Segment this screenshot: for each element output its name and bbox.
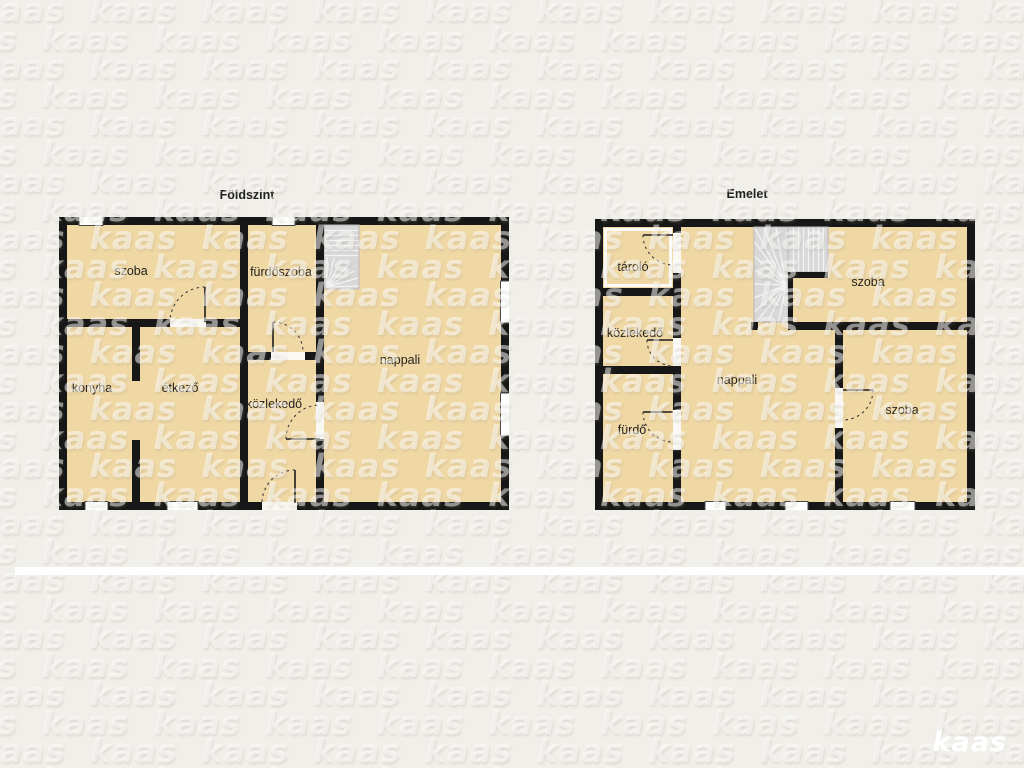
watermark-row: kaas kaas kaas kaas kaas kaas kaas kaas … — [0, 621, 1024, 653]
room-label-nappali: nappali — [380, 353, 420, 367]
door-opening-nappali — [316, 402, 324, 439]
window — [79, 217, 103, 226]
divider-line — [15, 567, 1024, 575]
room-label-kozlekedo-upper: közlekedő — [607, 326, 663, 340]
wall-tarolo-bottom — [595, 288, 681, 296]
door-opening-szoba — [835, 388, 843, 428]
watermark-row: kaas kaas kaas kaas kaas kaas kaas kaas … — [0, 735, 1024, 767]
watermark-row: kaas kaas kaas kaas kaas kaas kaas kaas … — [0, 593, 1024, 625]
room-label-furdo: fürdő — [618, 423, 647, 437]
window — [501, 393, 510, 436]
window — [501, 281, 510, 323]
floorplan-canvas: Földszint Emelet — [0, 0, 1024, 768]
watermark-row: kaas kaas kaas kaas kaas kaas kaas kaas … — [0, 650, 1024, 682]
wall-stair-stub — [751, 322, 758, 330]
room-label-szoba-bottom: szoba — [885, 403, 918, 417]
window — [785, 502, 808, 511]
window — [705, 502, 726, 511]
watermark-row: kaas kaas kaas kaas kaas kaas kaas kaas … — [0, 165, 1024, 197]
floor-title-upper: Emelet — [727, 187, 768, 201]
door-opening-furdoszoba — [271, 352, 305, 360]
room-label-konyha: konyha — [72, 381, 112, 395]
ground-floor-plan — [59, 217, 509, 510]
watermark-row: kaas kaas kaas kaas kaas kaas kaas kaas … — [0, 23, 1024, 55]
room-label-kozlekedo: közlekedő — [246, 397, 302, 411]
wall-kozlekedo-bottom — [595, 366, 681, 374]
window — [85, 502, 108, 511]
wall-stair-side — [788, 272, 793, 330]
wall-center-left — [240, 225, 248, 502]
watermark-row: kaas kaas kaas kaas kaas kaas kaas kaas … — [0, 507, 1024, 539]
watermark-row: kaas kaas kaas kaas kaas kaas kaas kaas … — [0, 707, 1024, 739]
door-opening-entrance — [262, 502, 297, 510]
wall-szoba-bottom — [59, 319, 248, 327]
brand-logo: kaas — [933, 727, 1007, 758]
window — [272, 217, 295, 226]
wall-konyha-upper — [132, 327, 140, 381]
watermark-row: kaas kaas kaas kaas kaas kaas kaas kaas … — [0, 80, 1024, 112]
wall-nappali-left — [316, 225, 324, 502]
door-opening-tarolo — [673, 233, 681, 273]
watermark-row: kaas kaas kaas kaas kaas kaas kaas kaas … — [0, 678, 1024, 710]
room-label-szoba: szoba — [114, 264, 147, 278]
staircase — [324, 225, 359, 289]
watermark-row: kaas kaas kaas kaas kaas kaas kaas kaas … — [0, 0, 1024, 26]
watermark-row: kaas kaas kaas kaas kaas kaas kaas kaas … — [0, 137, 1024, 169]
room-label-tarolo: tároló — [617, 260, 648, 274]
room-label-etkezo: étkező — [162, 381, 199, 395]
watermark-row: kaas kaas kaas kaas kaas kaas kaas kaas … — [0, 51, 1024, 83]
wall-stair-bottom — [793, 272, 828, 278]
room-label-furdoszoba: fürdőszoba — [250, 265, 312, 279]
watermark-row: kaas kaas kaas kaas kaas kaas kaas kaas … — [0, 108, 1024, 140]
door-opening-szoba — [170, 319, 206, 327]
door-opening-furdo — [673, 410, 681, 450]
wall-konyha-lower — [132, 440, 140, 502]
room-label-nappali-upper: nappali — [717, 373, 757, 387]
watermark-row: kaas kaas kaas kaas kaas kaas kaas kaas … — [0, 536, 1024, 568]
stair-treads — [794, 227, 824, 272]
wall-szoba-top — [788, 322, 967, 330]
floor-title-ground: Földszint — [220, 188, 275, 202]
room-label-szoba-top: szoba — [851, 275, 884, 289]
window — [167, 502, 198, 511]
door-opening-kozlekedo — [673, 338, 681, 366]
window — [890, 502, 915, 511]
upper-floor-plan — [595, 219, 975, 510]
watermark-row: kaas kaas kaas kaas kaas kaas kaas kaas … — [0, 764, 1024, 768]
